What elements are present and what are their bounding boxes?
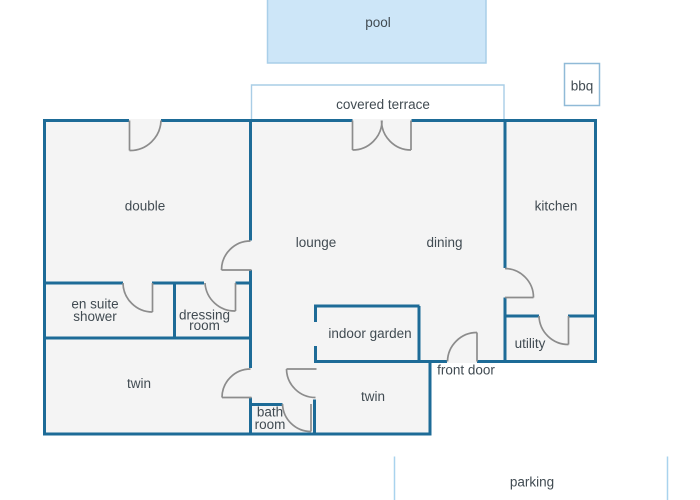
svg-text:dining: dining — [426, 235, 462, 250]
svg-text:double: double — [125, 199, 166, 214]
svg-text:twin: twin — [127, 376, 151, 391]
svg-text:twin: twin — [361, 389, 385, 404]
svg-text:room: room — [189, 318, 220, 333]
svg-text:lounge: lounge — [296, 235, 337, 250]
svg-text:covered terrace: covered terrace — [336, 97, 430, 112]
svg-text:room: room — [255, 417, 286, 432]
svg-text:pool: pool — [365, 15, 391, 30]
svg-text:front door: front door — [437, 363, 495, 378]
svg-text:shower: shower — [73, 309, 117, 324]
svg-text:bbq: bbq — [571, 79, 594, 94]
svg-text:indoor garden: indoor garden — [328, 326, 411, 341]
svg-text:kitchen: kitchen — [535, 199, 578, 214]
svg-text:parking: parking — [510, 475, 554, 490]
svg-text:utility: utility — [515, 336, 546, 351]
